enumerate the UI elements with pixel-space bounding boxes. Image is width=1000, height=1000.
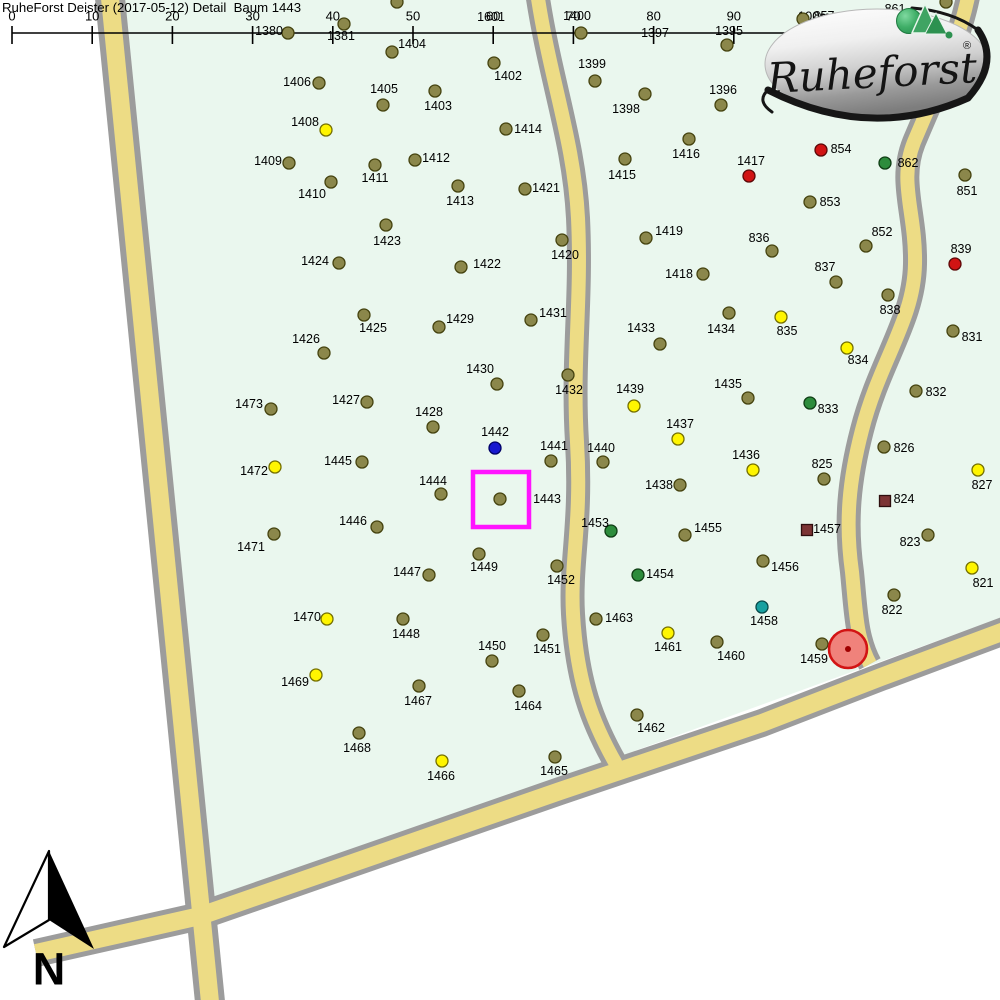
tree-dot-1472[interactable] [269,461,281,473]
tree-dot-edge[interactable] [391,0,403,8]
tree-label-1439: 1439 [616,382,644,396]
tree-label-1436: 1436 [732,448,760,462]
tree-label-1395: 1395 [715,24,743,38]
tree-label-833: 833 [818,402,839,416]
tree-dot-838[interactable] [882,289,894,301]
tree-dot-839[interactable] [949,258,961,270]
tree-dot-1400[interactable] [575,27,587,39]
grave-marker-1457[interactable] [802,525,813,536]
tree-dot-1435[interactable] [742,392,754,404]
tree-label-1428: 1428 [415,405,443,419]
tree-label-1423: 1423 [373,234,401,248]
tree-label-1434: 1434 [707,322,735,336]
tree-label-862: 862 [898,156,919,170]
tree-dot-1461[interactable] [662,627,674,639]
tree-dot-1417[interactable] [743,170,755,182]
tree-dot-825[interactable] [818,473,830,485]
tree-dot-1422[interactable] [455,261,467,273]
tree-label-1467: 1467 [404,694,432,708]
tree-label-1468: 1468 [343,741,371,755]
tree-label-1396: 1396 [709,83,737,97]
tree-dot-1460[interactable] [711,636,723,648]
tree-label-1420: 1420 [551,248,579,262]
tree-dot-1447[interactable] [423,569,435,581]
page-title: RuheForst Deister (2017-05-12) Detail Ba… [2,0,301,15]
tree-label-836: 836 [749,231,770,245]
tree-label-1462: 1462 [637,721,665,735]
tree-dot-1405[interactable] [377,99,389,111]
site-marker-circle[interactable] [829,630,867,668]
tree-label-1470: 1470 [293,610,321,624]
tree-label-823: 823 [900,535,921,549]
tree-label-1411: 1411 [362,171,389,185]
tree-dot-1459[interactable] [816,638,828,650]
tree-dot-1455[interactable] [679,529,691,541]
tree-dot-1442[interactable] [489,442,501,454]
tree-dot-1452[interactable] [551,560,563,572]
tree-dot-1428[interactable] [427,421,439,433]
north-label: N [33,944,66,995]
tree-dot-1431[interactable] [525,314,537,326]
tree-label-832: 832 [926,385,947,399]
tree-dot-835[interactable] [775,311,787,323]
tree-label-831: 831 [962,330,983,344]
tree-label-1473: 1473 [235,397,263,411]
tree-label-1457: 1457 [813,522,841,536]
tree-label-1426: 1426 [292,332,320,346]
tree-label-824: 824 [894,492,915,506]
tree-label-1398: 1398 [612,102,640,116]
tree-dot-1441[interactable] [545,455,557,467]
tree-label-1450: 1450 [478,639,506,653]
tree-dot-1429[interactable] [433,321,445,333]
tree-dot-1451[interactable] [537,629,549,641]
tree-dot-1414[interactable] [500,123,512,135]
grave-marker-824[interactable] [880,496,891,507]
tree-label-1425: 1425 [359,321,387,335]
tree-dot-826[interactable] [878,441,890,453]
tree-label-1408: 1408 [291,115,319,129]
scale-tick-label: 40 [326,9,340,24]
tree-label-1403: 1403 [424,99,452,113]
tree-dot-833[interactable] [804,397,816,409]
tree-dot-1423[interactable] [380,219,392,231]
tree-dot-821[interactable] [966,562,978,574]
tree-label-1447: 1447 [393,565,421,579]
tree-dot-1396[interactable] [715,99,727,111]
forest-map[interactable]: 0102030405060708090100m13801381140414001… [0,0,1000,1000]
tree-dot-1412[interactable] [409,154,421,166]
tree-dot-1456[interactable] [757,555,769,567]
tree-dot-1432[interactable] [562,369,574,381]
tree-dot-1464[interactable] [513,685,525,697]
tree-label-1402: 1402 [494,69,522,83]
tree-label-854: 854 [831,142,852,156]
tree-label-1469: 1469 [281,675,309,689]
tree-label-1414: 1414 [514,122,542,136]
tree-dot-1465[interactable] [549,751,561,763]
tree-label-1427: 1427 [332,393,360,407]
tree-dot-832[interactable] [910,385,922,397]
tree-label-1446: 1446 [339,514,367,528]
tree-dot-822[interactable] [888,589,900,601]
tree-dot-1406[interactable] [313,77,325,89]
tree-label-821: 821 [973,576,994,590]
tree-label-1601: 1601 [477,10,505,24]
tree-dot-1471[interactable] [268,528,280,540]
tree-dot-1443[interactable] [494,493,506,505]
tree-label-1463: 1463 [605,611,633,625]
tree-dot-1409[interactable] [283,157,295,169]
tree-dot-1454[interactable] [632,569,644,581]
tree-label-1472: 1472 [240,464,268,478]
tree-label-1455: 1455 [694,521,722,535]
tree-dot-1444[interactable] [435,488,447,500]
tree-label-1381: 1381 [327,29,355,43]
tree-label-1453: 1453 [581,516,609,530]
tree-label-1444: 1444 [419,474,447,488]
tree-dot-853[interactable] [804,196,816,208]
tree-dot-edge[interactable] [940,0,952,8]
tree-dot-1427[interactable] [361,396,373,408]
tree-dot-862[interactable] [879,157,891,169]
tree-label-1433: 1433 [627,321,655,335]
tree-label-1454: 1454 [646,567,674,581]
tree-label-1435: 1435 [714,377,742,391]
tree-label-1380: 1380 [255,24,283,38]
tree-dot-1403[interactable] [429,85,441,97]
tree-dot-1466[interactable] [436,755,448,767]
tree-dot-1468[interactable] [353,727,365,739]
tree-dot-1421[interactable] [519,183,531,195]
tree-label-1471: 1471 [237,540,265,554]
tree-dot-1408[interactable] [320,124,332,136]
tree-dot-1436[interactable] [747,464,759,476]
tree-dot-1433[interactable] [654,338,666,350]
tree-dot-1458[interactable] [756,601,768,613]
tree-label-1445: 1445 [324,454,352,468]
tree-dot-1470[interactable] [321,613,333,625]
tree-label-1399: 1399 [578,57,606,71]
tree-label-1461: 1461 [654,640,682,654]
tree-label-1443: 1443 [533,492,561,506]
tree-dot-1430[interactable] [491,378,503,390]
tree-dot-1449[interactable] [473,548,485,560]
tree-dot-1446[interactable] [371,521,383,533]
tree-dot-827[interactable] [972,464,984,476]
tree-dot-1420[interactable] [556,234,568,246]
tree-label-1466: 1466 [427,769,455,783]
tree-dot-837[interactable] [830,276,842,288]
tree-label-838: 838 [880,303,901,317]
tree-label-1442: 1442 [481,425,509,439]
tree-label-1432: 1432 [555,383,583,397]
tree-dot-1463[interactable] [590,613,602,625]
tree-label-1412: 1412 [422,151,450,165]
map-viewer: 0102030405060708090100m13801381140414001… [0,0,1000,1000]
tree-dot-1398[interactable] [639,88,651,100]
tree-label-825: 825 [812,457,833,471]
tree-label-1413: 1413 [446,194,474,208]
tree-label-1438: 1438 [645,478,673,492]
tree-label-1400: 1400 [563,9,591,23]
tree-dot-1424[interactable] [333,257,345,269]
tree-label-839: 839 [951,242,972,256]
tree-dot-1399[interactable] [589,75,601,87]
logo-registered-mark: ® [963,40,971,52]
tree-label-1410: 1410 [298,187,326,201]
tree-dot-1469[interactable] [310,669,322,681]
scale-tick-label: 80 [646,9,660,24]
tree-label-1430: 1430 [466,362,494,376]
tree-label-1456: 1456 [771,560,799,574]
tree-dot-1425[interactable] [358,309,370,321]
tree-label-1422: 1422 [473,257,501,271]
tree-dot-1413[interactable] [452,180,464,192]
tree-dot-1445[interactable] [356,456,368,468]
tree-dot-1437[interactable] [672,433,684,445]
tree-label-1451: 1451 [533,642,561,656]
tree-dot-1404[interactable] [386,46,398,58]
tree-dot-1439[interactable] [628,400,640,412]
tree-dot-1438[interactable] [674,479,686,491]
tree-label-1404: 1404 [398,37,426,51]
tree-dot-1467[interactable] [413,680,425,692]
tree-dot-1410[interactable] [325,176,337,188]
scale-tick-label: 90 [727,9,741,24]
tree-dot-1473[interactable] [265,403,277,415]
tree-label-1419: 1419 [655,224,683,238]
tree-dot-1415[interactable] [619,153,631,165]
tree-dot-1440[interactable] [597,456,609,468]
tree-dot-1448[interactable] [397,613,409,625]
tree-label-1441: 1441 [540,439,568,453]
tree-dot-1411[interactable] [369,159,381,171]
scale-tick-label: 50 [406,9,420,24]
tree-label-826: 826 [894,441,915,455]
tree-dot-852[interactable] [860,240,872,252]
tree-label-827: 827 [972,478,993,492]
tree-label-834: 834 [848,353,869,367]
tree-dot-854[interactable] [815,144,827,156]
tree-label-1405: 1405 [370,82,398,96]
tree-label-1424: 1424 [301,254,329,268]
tree-label-1417: 1417 [737,154,765,168]
tree-label-1437: 1437 [666,417,694,431]
tree-label-1415: 1415 [608,168,636,182]
tree-dot-1395[interactable] [721,39,733,51]
tree-label-1397: 1397 [641,26,669,40]
tree-label-1429: 1429 [446,312,474,326]
tree-dot-1380[interactable] [282,27,294,39]
tree-dot-851[interactable] [959,169,971,181]
tree-label-1409: 1409 [254,154,282,168]
tree-dot-1402[interactable] [488,57,500,69]
tree-label-1460: 1460 [717,649,745,663]
tree-dot-831[interactable] [947,325,959,337]
tree-dot-1450[interactable] [486,655,498,667]
tree-label-1440: 1440 [587,441,615,455]
tree-dot-836[interactable] [766,245,778,257]
tree-label-851: 851 [957,184,978,198]
tree-dot-1462[interactable] [631,709,643,721]
tree-label-1448: 1448 [392,627,420,641]
tree-label-1458: 1458 [750,614,778,628]
tree-label-1465: 1465 [540,764,568,778]
tree-dot-823[interactable] [922,529,934,541]
tree-dot-1426[interactable] [318,347,330,359]
tree-label-835: 835 [777,324,798,338]
tree-dot-1418[interactable] [697,268,709,280]
tree-label-852: 852 [872,225,893,239]
tree-label-837: 837 [815,260,836,274]
tree-dot-1419[interactable] [640,232,652,244]
tree-dot-1434[interactable] [723,307,735,319]
tree-label-822: 822 [882,603,903,617]
tree-label-1431: 1431 [539,306,567,320]
tree-label-1421: 1421 [532,181,560,195]
tree-label-1406: 1406 [283,75,311,89]
tree-label-1459: 1459 [800,652,828,666]
tree-label-1418: 1418 [665,267,693,281]
tree-label-1452: 1452 [547,573,575,587]
tree-label-1449: 1449 [470,560,498,574]
tree-label-1416: 1416 [672,147,700,161]
tree-label-853: 853 [820,195,841,209]
tree-dot-1416[interactable] [683,133,695,145]
tree-label-1464: 1464 [514,699,542,713]
